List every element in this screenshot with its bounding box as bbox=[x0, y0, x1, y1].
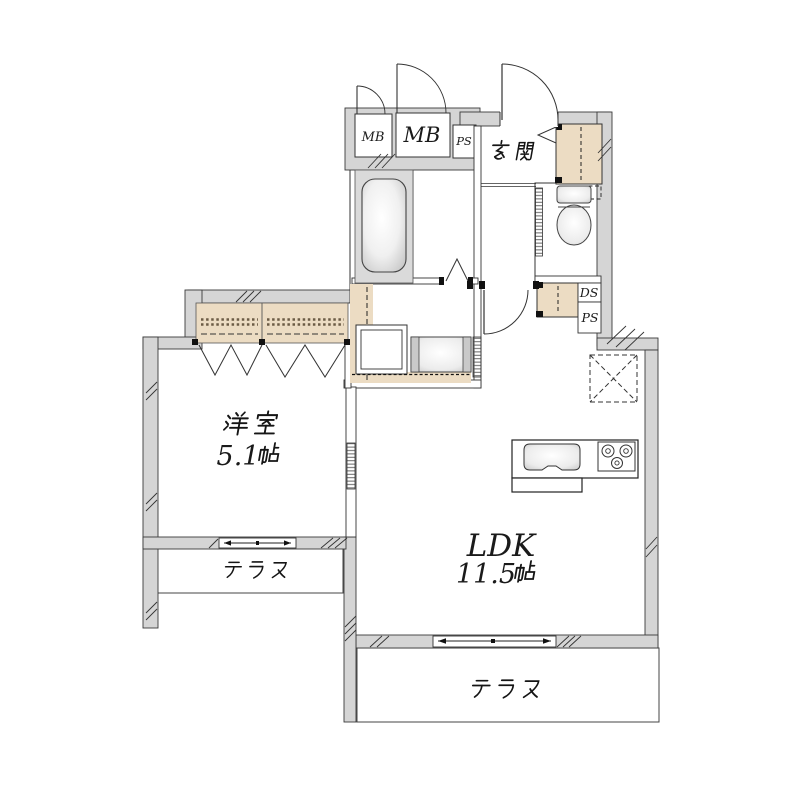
label-mb-small: MB bbox=[361, 130, 385, 145]
kitchen bbox=[512, 440, 638, 492]
floorplan-page: MB MB PS DS PS LDK 11.5 5.1 玄関 洋室 5.1帖 1… bbox=[0, 0, 800, 800]
label-ps-top: PS bbox=[455, 134, 472, 148]
label-terrace-west: テラス bbox=[238, 564, 274, 578]
label-ds: DS bbox=[579, 285, 599, 300]
bathtub bbox=[362, 179, 406, 272]
toilet-tank bbox=[557, 186, 591, 203]
label-entrance: 玄関 bbox=[498, 147, 526, 164]
window-ldk-south bbox=[433, 636, 556, 647]
western-room-sliding-door bbox=[347, 443, 355, 489]
window-western-room bbox=[219, 538, 296, 548]
shoe-cabinet bbox=[556, 124, 602, 184]
label-ps-side: PS bbox=[581, 310, 599, 325]
kitchen-sink bbox=[524, 444, 580, 470]
shoe-cabinet-swing-mark bbox=[538, 127, 556, 143]
floorplan-svg: MB MB PS DS PS LDK 11.5 5.1 玄関 洋室 5.1帖 1… bbox=[0, 0, 800, 800]
label-terrace-south: テラス bbox=[487, 682, 523, 696]
closet-folding-doors bbox=[199, 345, 345, 377]
hall-door-arc bbox=[484, 290, 528, 334]
bath-door-gap bbox=[441, 275, 471, 287]
toilet-bowl bbox=[557, 205, 591, 245]
closet bbox=[192, 303, 350, 377]
label-ldk-size: 11.5帖 bbox=[484, 568, 516, 581]
washroom-sliding-door bbox=[473, 337, 481, 377]
label-western-room-size: 5.1帖 bbox=[239, 450, 265, 463]
label-entrance-glyphs: 玄関 bbox=[491, 141, 534, 164]
toilet-sliding-door bbox=[536, 188, 543, 256]
refrigerator-space bbox=[590, 355, 637, 402]
vanity-unit bbox=[411, 337, 471, 372]
label-western-room: 洋室 bbox=[239, 419, 267, 436]
entrance-step-lines bbox=[481, 184, 536, 187]
label-mb-large: MB bbox=[403, 123, 441, 147]
kitchen-counter-return bbox=[512, 478, 582, 492]
entrance-area bbox=[538, 124, 602, 184]
